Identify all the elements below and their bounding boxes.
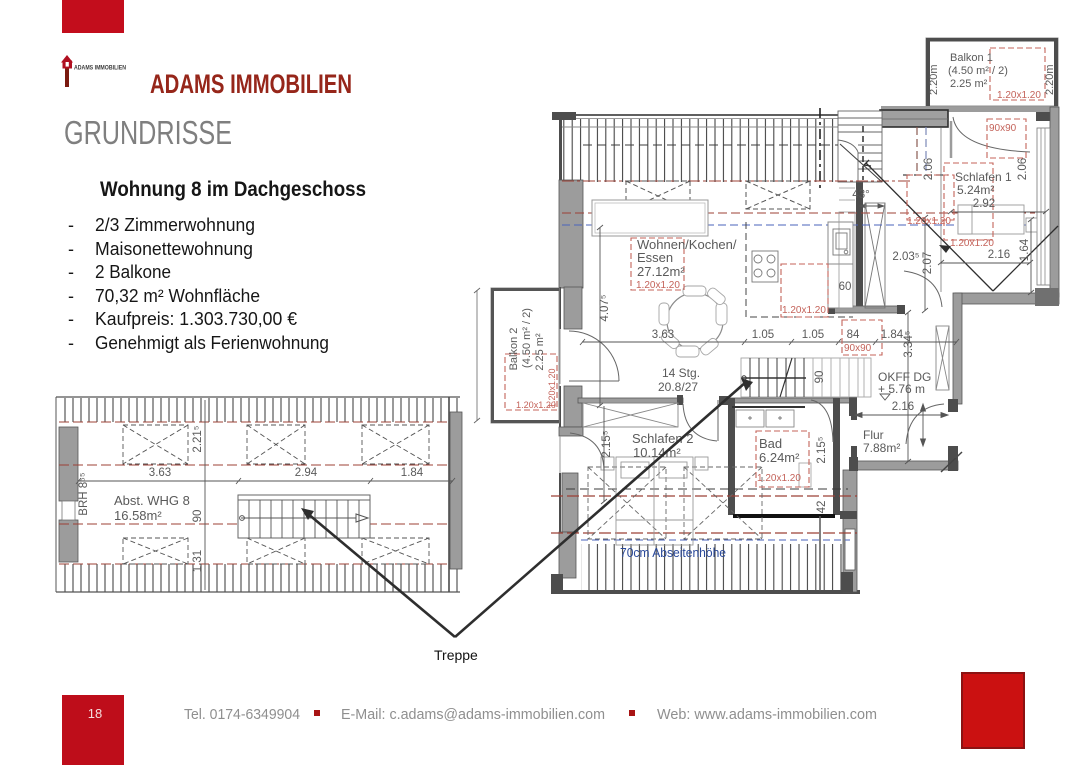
svg-text:70,32 m² Wohnfläche: 70,32 m² Wohnfläche — [95, 286, 260, 306]
svg-text:2.21⁵: 2.21⁵ — [192, 425, 204, 452]
svg-text:2.92: 2.92 — [973, 198, 995, 210]
svg-text:1.05: 1.05 — [752, 329, 774, 341]
svg-text:7.88m²: 7.88m² — [863, 441, 900, 455]
svg-text:Kaufpreis: 1.303.730,00 €: Kaufpreis: 1.303.730,00 € — [95, 309, 297, 329]
svg-text:1.20x1.20: 1.20x1.20 — [636, 280, 680, 291]
svg-text:43°: 43° — [852, 189, 869, 201]
svg-text:Essen: Essen — [637, 250, 673, 265]
svg-text:-: - — [68, 215, 74, 235]
svg-text:90x90: 90x90 — [989, 123, 1017, 134]
svg-text:-: - — [68, 333, 74, 353]
svg-text:-: - — [68, 239, 74, 259]
svg-text:1.20x1.20: 1.20x1.20 — [547, 368, 557, 408]
svg-text:1.84: 1.84 — [401, 467, 424, 479]
svg-text:2.07: 2.07 — [922, 252, 934, 274]
svg-text:1.05: 1.05 — [802, 329, 824, 341]
svg-text:(4.50 m² / 2): (4.50 m² / 2) — [948, 65, 1008, 77]
svg-text:16.58m²: 16.58m² — [114, 508, 162, 523]
svg-text:1.31: 1.31 — [192, 550, 204, 572]
svg-text:Abst. WHG 8: Abst. WHG 8 — [114, 493, 190, 508]
svg-text:(4.50 m² / 2): (4.50 m² / 2) — [521, 308, 533, 368]
svg-text:90: 90 — [814, 371, 826, 384]
svg-text:ADAMS IMMOBILIEN: ADAMS IMMOBILIEN — [150, 69, 352, 99]
svg-text:2/3 Zimmerwohnung: 2/3 Zimmerwohnung — [95, 215, 255, 235]
svg-text:90: 90 — [192, 510, 204, 523]
svg-text:3.63: 3.63 — [652, 329, 674, 341]
svg-text:Flur: Flur — [863, 428, 884, 442]
svg-text:90x90: 90x90 — [844, 343, 872, 354]
svg-text:3.34⁵: 3.34⁵ — [903, 330, 915, 357]
svg-text:3.63: 3.63 — [149, 467, 171, 479]
svg-text:2.15⁵: 2.15⁵ — [601, 430, 613, 457]
svg-text:2.20m: 2.20m — [1044, 64, 1056, 95]
svg-text:6.24m²: 6.24m² — [759, 450, 800, 465]
svg-text:2.06: 2.06 — [1017, 158, 1029, 180]
svg-text:E-Mail: c.adams@adams-immobili: E-Mail: c.adams@adams-immobilien.com — [341, 706, 605, 723]
svg-text:Tel. 0174-6349904: Tel. 0174-6349904 — [184, 706, 300, 723]
svg-text:Genehmigt als Ferienwohnung: Genehmigt als Ferienwohnung — [95, 333, 329, 353]
svg-text:2.06: 2.06 — [923, 158, 935, 180]
svg-text:2.94: 2.94 — [295, 467, 318, 479]
svg-text:2.25 m²: 2.25 m² — [950, 78, 988, 90]
svg-text:Balkon 2: Balkon 2 — [508, 328, 520, 371]
svg-text:18: 18 — [88, 706, 102, 721]
svg-text:Bad: Bad — [759, 436, 782, 451]
svg-text:1.84: 1.84 — [881, 329, 904, 341]
svg-text:GRUNDRISSE: GRUNDRISSE — [64, 114, 232, 151]
svg-text:Schlafen 1: Schlafen 1 — [955, 170, 1012, 184]
svg-text:2 Balkone: 2 Balkone — [95, 262, 171, 282]
svg-text:2.20m: 2.20m — [928, 64, 940, 95]
svg-text:-: - — [68, 309, 74, 329]
svg-text:BRH 8⁵⁵: BRH 8⁵⁵ — [78, 472, 90, 516]
svg-text:60: 60 — [839, 281, 852, 293]
svg-text:1.64: 1.64 — [1019, 238, 1031, 261]
svg-text:-: - — [68, 286, 74, 306]
svg-text:Schlafen 2: Schlafen 2 — [632, 431, 693, 446]
svg-text:20.8/27: 20.8/27 — [658, 380, 698, 394]
svg-text:2.03⁵: 2.03⁵ — [892, 251, 919, 263]
svg-text:14 Stg.: 14 Stg. — [662, 366, 700, 380]
svg-text:2.25 m²: 2.25 m² — [534, 333, 546, 371]
svg-text:1.20x1.20: 1.20x1.20 — [907, 216, 951, 227]
svg-text:2.16: 2.16 — [892, 401, 914, 413]
svg-text:Maisonettewohnung: Maisonettewohnung — [95, 239, 253, 259]
svg-text:1.20x1.20: 1.20x1.20 — [782, 305, 826, 316]
svg-text:1.20x1.20: 1.20x1.20 — [950, 238, 994, 249]
svg-text:84: 84 — [847, 329, 860, 341]
svg-text:Treppe: Treppe — [434, 647, 478, 663]
svg-text:1.20x1.20: 1.20x1.20 — [997, 90, 1041, 101]
svg-text:-: - — [68, 262, 74, 282]
svg-text:27.12m²: 27.12m² — [637, 264, 685, 279]
svg-text:Web: www.adams-immobilien.com: Web: www.adams-immobilien.com — [657, 706, 877, 723]
svg-text:42: 42 — [816, 501, 828, 514]
svg-text:ADAMS IMMOBILIEN: ADAMS IMMOBILIEN — [74, 66, 126, 72]
svg-text:Wohnung 8 im Dachgeschoss: Wohnung 8 im Dachgeschoss — [100, 178, 366, 201]
svg-text:1.20x1.20: 1.20x1.20 — [757, 473, 801, 484]
svg-text:5.24m²: 5.24m² — [957, 183, 994, 197]
svg-text:Balkon 1: Balkon 1 — [950, 52, 993, 64]
svg-text:4.07⁵: 4.07⁵ — [599, 294, 611, 321]
svg-text:2.15⁵: 2.15⁵ — [816, 436, 828, 463]
svg-text:2.16: 2.16 — [988, 249, 1010, 261]
svg-text:10.14m²: 10.14m² — [633, 445, 681, 460]
svg-text:70cm Abseitenhöhe: 70cm Abseitenhöhe — [620, 545, 726, 560]
